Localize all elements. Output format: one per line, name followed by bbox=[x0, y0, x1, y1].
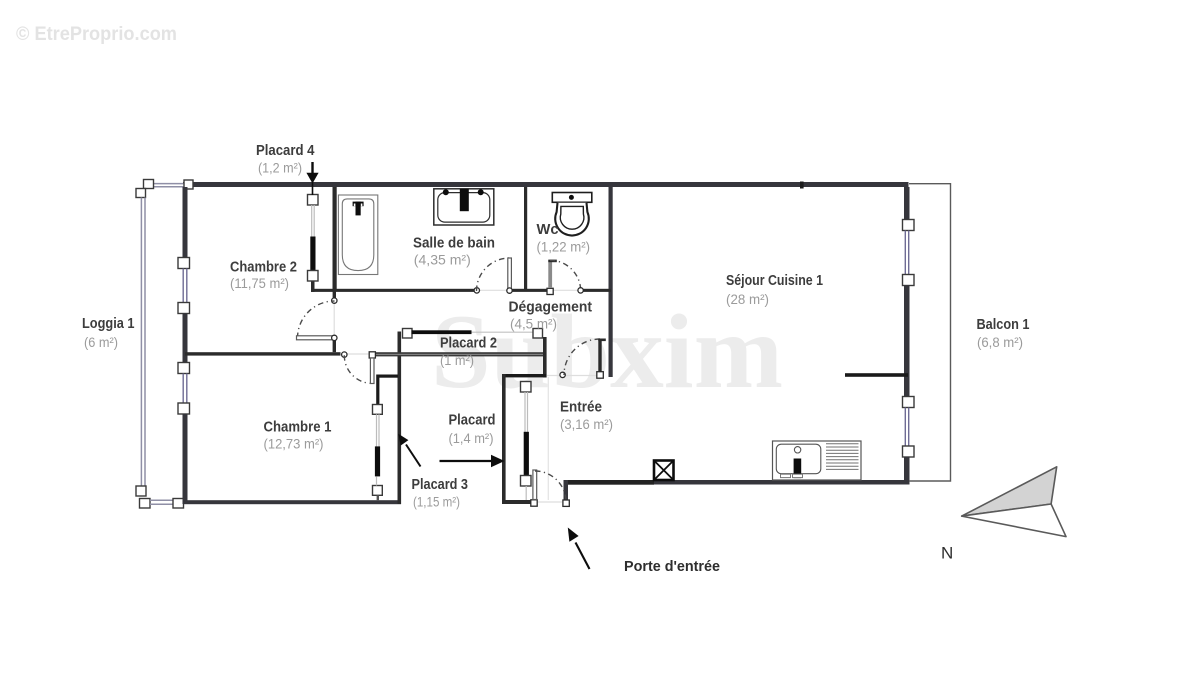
svg-text:Placard 2: Placard 2 bbox=[440, 335, 497, 352]
svg-text:© EtreProprio.com: © EtreProprio.com bbox=[16, 24, 177, 45]
svg-text:(1,22 m²): (1,22 m²) bbox=[537, 239, 591, 255]
svg-text:(12,73 m²): (12,73 m²) bbox=[264, 436, 324, 452]
svg-text:Loggia 1: Loggia 1 bbox=[82, 315, 135, 332]
svg-text:Dégagement: Dégagement bbox=[509, 299, 593, 316]
svg-text:Chambre 2: Chambre 2 bbox=[230, 259, 297, 276]
svg-text:(1 m²): (1 m²) bbox=[440, 352, 474, 368]
svg-text:(1,4 m²): (1,4 m²) bbox=[449, 430, 494, 446]
svg-text:Placard 3: Placard 3 bbox=[412, 476, 469, 493]
svg-text:(4,5 m²): (4,5 m²) bbox=[510, 316, 557, 332]
svg-text:(3,16 m²): (3,16 m²) bbox=[560, 416, 613, 432]
svg-text:(1,15 m²): (1,15 m²) bbox=[413, 494, 460, 510]
svg-text:(28 m²): (28 m²) bbox=[726, 291, 769, 307]
svg-text:Salle de bain: Salle de bain bbox=[413, 235, 495, 252]
svg-text:Porte d'entrée: Porte d'entrée bbox=[624, 559, 720, 575]
svg-text:Séjour Cuisine 1: Séjour Cuisine 1 bbox=[726, 272, 823, 289]
svg-text:Chambre 1: Chambre 1 bbox=[264, 419, 332, 436]
svg-text:(1,2 m²): (1,2 m²) bbox=[258, 160, 302, 176]
svg-text:(6 m²): (6 m²) bbox=[84, 334, 118, 350]
svg-text:Subxim: Subxim bbox=[431, 293, 783, 410]
svg-text:Placard: Placard bbox=[449, 412, 496, 429]
svg-text:N: N bbox=[941, 544, 953, 563]
svg-text:(11,75 m²): (11,75 m²) bbox=[230, 275, 289, 291]
svg-text:Balcon 1: Balcon 1 bbox=[977, 316, 1030, 333]
svg-text:Wc: Wc bbox=[537, 221, 559, 238]
svg-text:(6,8 m²): (6,8 m²) bbox=[977, 334, 1023, 350]
svg-text:Entrée: Entrée bbox=[560, 399, 602, 416]
svg-text:Placard 4: Placard 4 bbox=[256, 142, 315, 159]
svg-text:(4,35 m²): (4,35 m²) bbox=[414, 252, 471, 268]
